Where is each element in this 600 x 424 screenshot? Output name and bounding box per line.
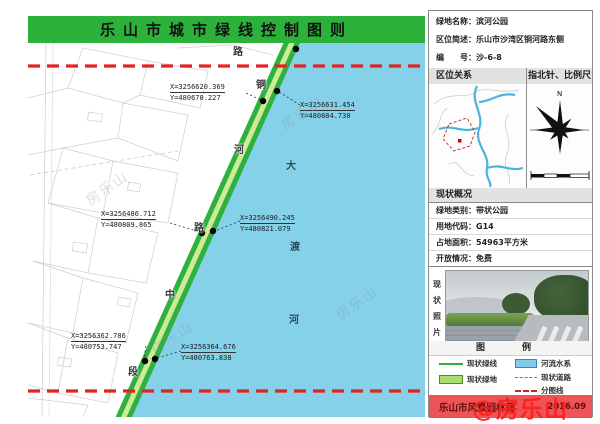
legend-item-road: 现状道路 xyxy=(515,372,571,383)
river-name-char: 大 xyxy=(286,157,296,172)
location-relation-header: 区位关系 xyxy=(429,68,527,84)
road-name-char: 路 xyxy=(194,219,204,234)
status-row: 开放情况：免费 xyxy=(429,251,592,267)
legend-item-river: 河流水系 xyxy=(515,358,571,369)
info-panel: 绿地名称：滨河公园 区位简述：乐山市沙湾区铜河路东侧 编 号：沙-6-8 区位关… xyxy=(428,10,593,417)
river-name-char: 渡 xyxy=(290,238,300,253)
road-name-char: 铜 xyxy=(256,76,266,91)
road-symbol xyxy=(515,377,537,378)
map-canvas: X=3256620.369 Y=480670.227 X=3256631.454… xyxy=(28,43,425,417)
coordinate-label: X=3256620.369 Y=480670.227 xyxy=(170,83,225,102)
river-name-char: 河 xyxy=(289,311,299,326)
location-brief-row: 区位简述：乐山市沙湾区铜河路东侧 xyxy=(436,34,564,45)
green-line-symbol xyxy=(439,363,463,365)
green-space-symbol xyxy=(439,375,463,384)
photo-vertical-label: 现 状 照 片 xyxy=(429,267,445,349)
district-boundary xyxy=(443,118,475,151)
road-name-char: 中 xyxy=(165,286,175,301)
green-space-name-row: 绿地名称：滨河公园 xyxy=(436,16,508,27)
coordinate-label: X=3256490.245 Y=480821.079 xyxy=(240,214,295,233)
legend-item-greenspace: 现状绿地 xyxy=(439,374,497,385)
site-photo xyxy=(445,270,589,346)
north-arrow-icon: N xyxy=(527,84,592,187)
plan-sheet-page: 乐山市城市绿线控制图则 xyxy=(0,0,600,424)
title-banner: 乐山市城市绿线控制图则 xyxy=(28,16,425,43)
road-name-char: 段 xyxy=(128,363,138,378)
legend-item-greenline: 现状绿线 xyxy=(439,358,497,369)
status-row: 占地面积：54963平方米 xyxy=(429,235,592,251)
photo-section: 现 状 照 片 xyxy=(429,267,592,350)
status-row: 用地代码：G14 xyxy=(429,219,592,235)
map-sheet: 乐山市城市绿线控制图则 xyxy=(28,10,425,417)
scale-bar-icon xyxy=(531,171,589,180)
locator-map-graphic xyxy=(429,84,526,187)
svg-text:N: N xyxy=(557,90,562,98)
header-info-box: 绿地名称：滨河公园 区位简述：乐山市沙湾区铜河路东侧 编 号：沙-6-8 xyxy=(429,11,592,69)
legend: 现状绿线 现状绿地 河流水系 现状道路 分图线 xyxy=(429,355,592,395)
river-symbol xyxy=(515,359,537,368)
photo-tree xyxy=(502,293,530,315)
coordinate-label: X=3256364.676 Y=480763.838 xyxy=(181,343,236,362)
status-overview-header: 现状概况 xyxy=(429,188,592,203)
compass-scale-header: 指北针、比例尺 xyxy=(527,68,592,84)
status-row: 绿地类别：带状公园 xyxy=(429,203,592,219)
locator-map xyxy=(429,84,527,188)
graphics-row: N xyxy=(429,84,592,188)
road-name-char: 河 xyxy=(234,141,244,156)
compass-cell: N xyxy=(527,84,592,188)
coordinate-label: X=3256486.712 Y=480809.865 xyxy=(101,210,156,229)
legend-header: 图 例 xyxy=(429,341,592,356)
red-watermark: @房乐山 xyxy=(472,390,568,424)
page-title: 乐山市城市绿线控制图则 xyxy=(100,19,353,40)
photo-trees xyxy=(534,275,589,321)
section-headers: 区位关系 指北针、比例尺 xyxy=(429,68,592,85)
coordinate-label: X=3256362.786 Y=480753.747 xyxy=(71,332,126,351)
road-name-char: 路 xyxy=(233,43,243,58)
river-network xyxy=(439,86,523,187)
site-marker xyxy=(458,139,462,143)
sheet-number-row: 编 号：沙-6-8 xyxy=(436,52,502,63)
